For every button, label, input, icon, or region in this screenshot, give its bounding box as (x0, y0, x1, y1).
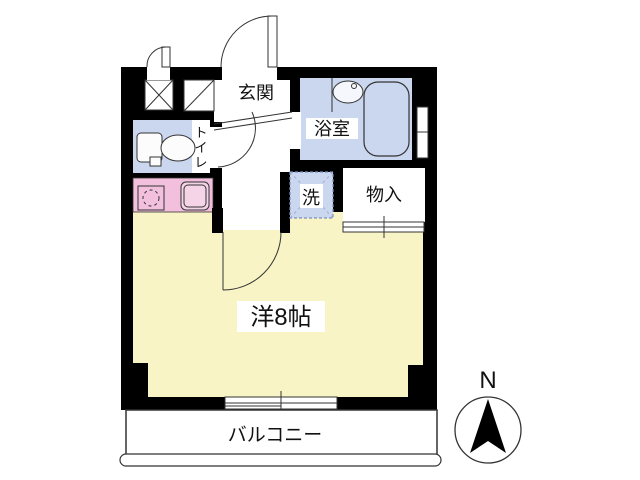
laundry-label: 洗 (302, 188, 320, 208)
balcony-label: バルコニー (228, 425, 323, 446)
service-door-opening (147, 67, 170, 80)
entrance-door-opening (222, 67, 277, 80)
entrance-door-leaf (268, 16, 277, 67)
toilet-label-char1: ト (194, 125, 207, 140)
pillar-bottom-left (133, 363, 148, 410)
bathroom-door-opening (289, 112, 301, 149)
toilet-base-icon (150, 157, 161, 166)
corridor-lower (222, 172, 280, 230)
toilet-door-opening (209, 127, 223, 168)
service-door-leaf (162, 47, 170, 67)
floor-plan-canvas: N 玄関 浴室 ト イ レ 洗 物入 洋8帖 バルコニー (0, 0, 640, 480)
main-room-label: 洋8帖 (250, 304, 311, 331)
toilet-label-char3: レ (194, 155, 207, 170)
wall-patch-left (212, 208, 223, 233)
corridor-upper (222, 122, 290, 172)
toilet-label-char2: イ (194, 140, 207, 155)
entrance-label: 玄関 (238, 83, 274, 103)
storage-label: 物入 (366, 185, 402, 205)
floor-plan-screenshot: N 玄関 浴室 ト イ レ 洗 物入 洋8帖 バルコニー (0, 0, 640, 480)
toilet-bowl-icon (161, 135, 195, 161)
washbasin-icon (333, 81, 363, 103)
wall-patch-right (280, 208, 290, 233)
balcony-rail (120, 454, 441, 466)
compass-north-label: N (479, 367, 496, 394)
pillar-bottom-right (408, 365, 423, 410)
bathroom-label: 浴室 (314, 119, 350, 139)
